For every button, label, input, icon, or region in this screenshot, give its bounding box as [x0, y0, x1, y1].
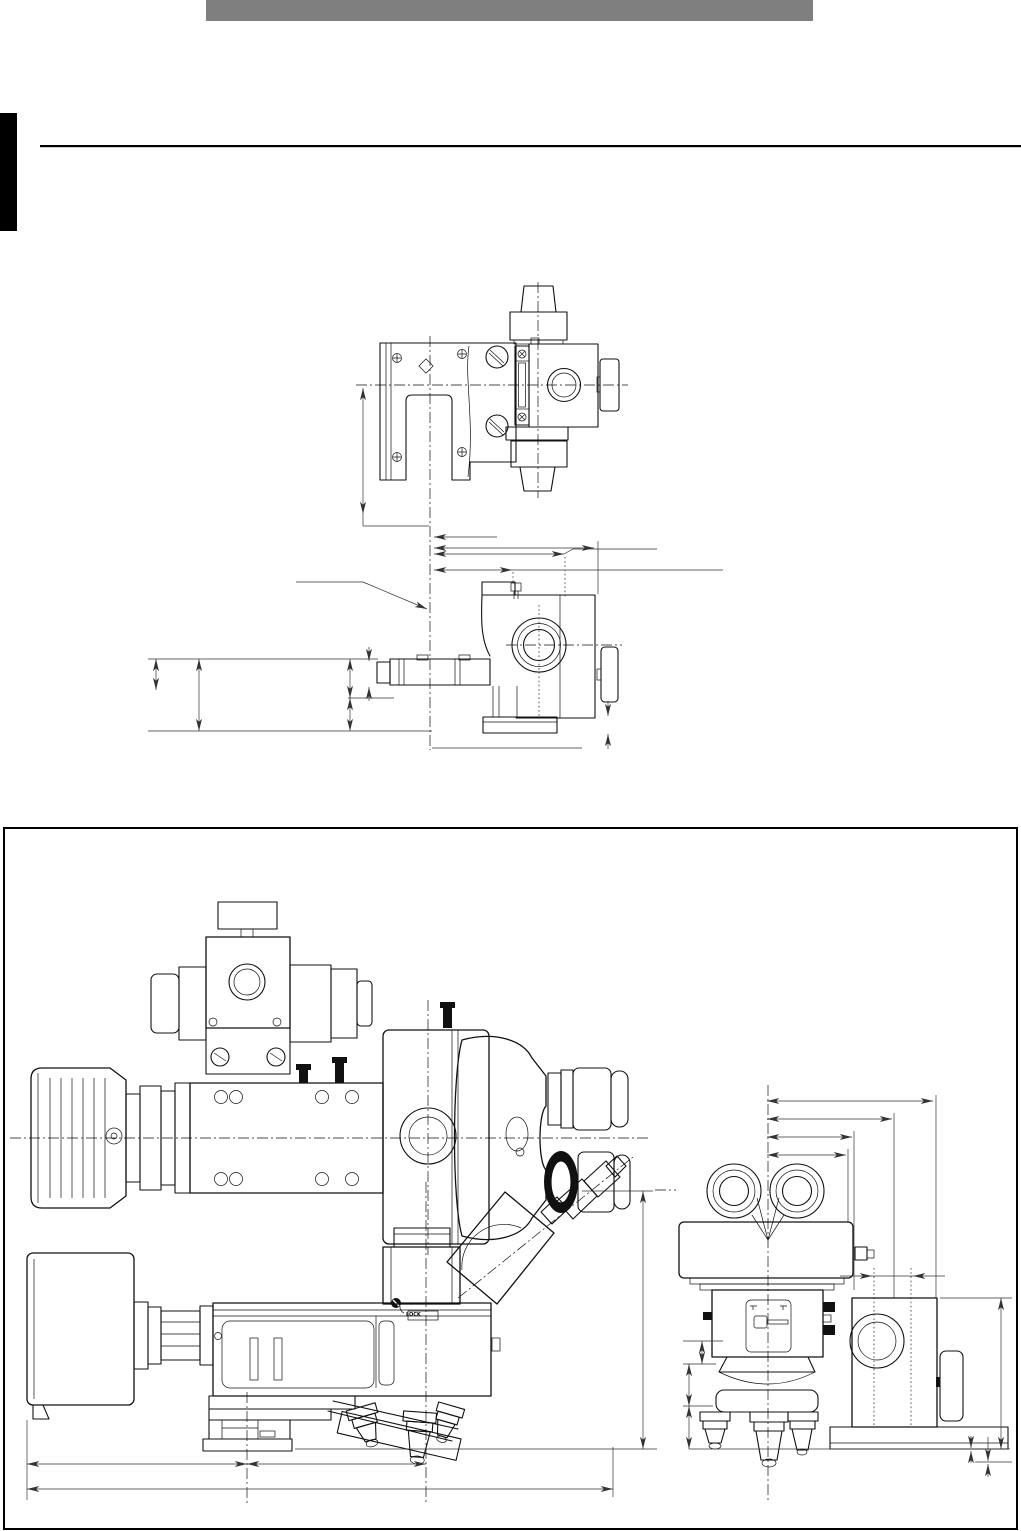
observation-tube-side — [447, 1156, 633, 1304]
eyepiece-tube-upper — [548, 1068, 628, 1130]
body-block-front — [703, 1290, 835, 1357]
manual-page: LOCK — [0, 0, 1021, 1531]
head-clamp-screw — [855, 1247, 874, 1260]
figure-box-border — [4, 828, 1017, 1529]
divider-rule — [40, 145, 1021, 147]
top-boss — [482, 582, 515, 595]
dovetail-rack — [515, 346, 529, 425]
clamp-bolt — [296, 1057, 347, 1083]
stage-and-condenser-side — [203, 1396, 355, 1451]
focusing-module-mounted — [151, 902, 372, 1074]
frame-arm-side — [213, 1303, 500, 1396]
eyepiece-right — [770, 1164, 824, 1218]
base-plate — [830, 1427, 1008, 1449]
slider-knob — [754, 1316, 767, 1328]
focusing-module-top-view — [356, 282, 628, 750]
assembly-top-view — [10, 902, 650, 1255]
right-focus-knob — [290, 965, 331, 1042]
left-focus-knob — [179, 967, 206, 1040]
nosepiece-front — [700, 1357, 818, 1467]
lock-label: LOCK — [406, 1312, 422, 1318]
focus-block-front — [830, 1268, 1008, 1449]
objective-front-right — [788, 1412, 818, 1455]
tube-lock: LOCK — [391, 1298, 422, 1318]
objective-lens-left — [346, 1403, 386, 1451]
support-arm — [377, 655, 490, 685]
side-lug — [492, 1338, 500, 1351]
coarse-focus-knob-top — [510, 286, 567, 344]
objective-front-center — [750, 1412, 788, 1467]
lamp-housing-side — [27, 1253, 134, 1419]
lens-port — [506, 605, 622, 717]
objective-lens-center — [400, 1411, 437, 1465]
module-body — [529, 338, 598, 427]
break-line — [468, 346, 471, 477]
bracket-screws — [393, 350, 467, 462]
assembly-front-view — [655, 1085, 1012, 1502]
side-focus-knob — [597, 647, 618, 702]
rack-screw — [511, 583, 521, 591]
objective-front-left — [700, 1412, 730, 1449]
dimension-lines-upper — [296, 388, 723, 609]
lamp-housing — [31, 1068, 126, 1208]
neck-profile — [482, 595, 490, 656]
frame-column — [383, 1000, 489, 1255]
section-side-tab — [0, 113, 17, 231]
lamp-collar-side — [134, 1302, 213, 1369]
page-canvas: LOCK — [0, 0, 1021, 1531]
eyepiece-left — [707, 1164, 761, 1218]
binocular-head-front — [679, 1164, 874, 1290]
focusing-module-side-view — [148, 582, 622, 749]
header-bar — [206, 0, 813, 21]
top-knob — [218, 902, 277, 929]
illuminator-body — [190, 1057, 383, 1193]
nosepiece-side — [328, 1401, 465, 1465]
trinocular-port — [383, 1228, 460, 1304]
mounting-bracket — [380, 343, 516, 480]
coarse-focus-knob-bottom — [506, 427, 568, 491]
focus-knob-front — [936, 1351, 963, 1421]
eyepiece-tube-lower — [544, 1151, 630, 1213]
clamp-bolt-holes — [486, 346, 508, 437]
foot-plate — [483, 717, 557, 733]
dimension-lines-side-view — [27, 1191, 653, 1500]
